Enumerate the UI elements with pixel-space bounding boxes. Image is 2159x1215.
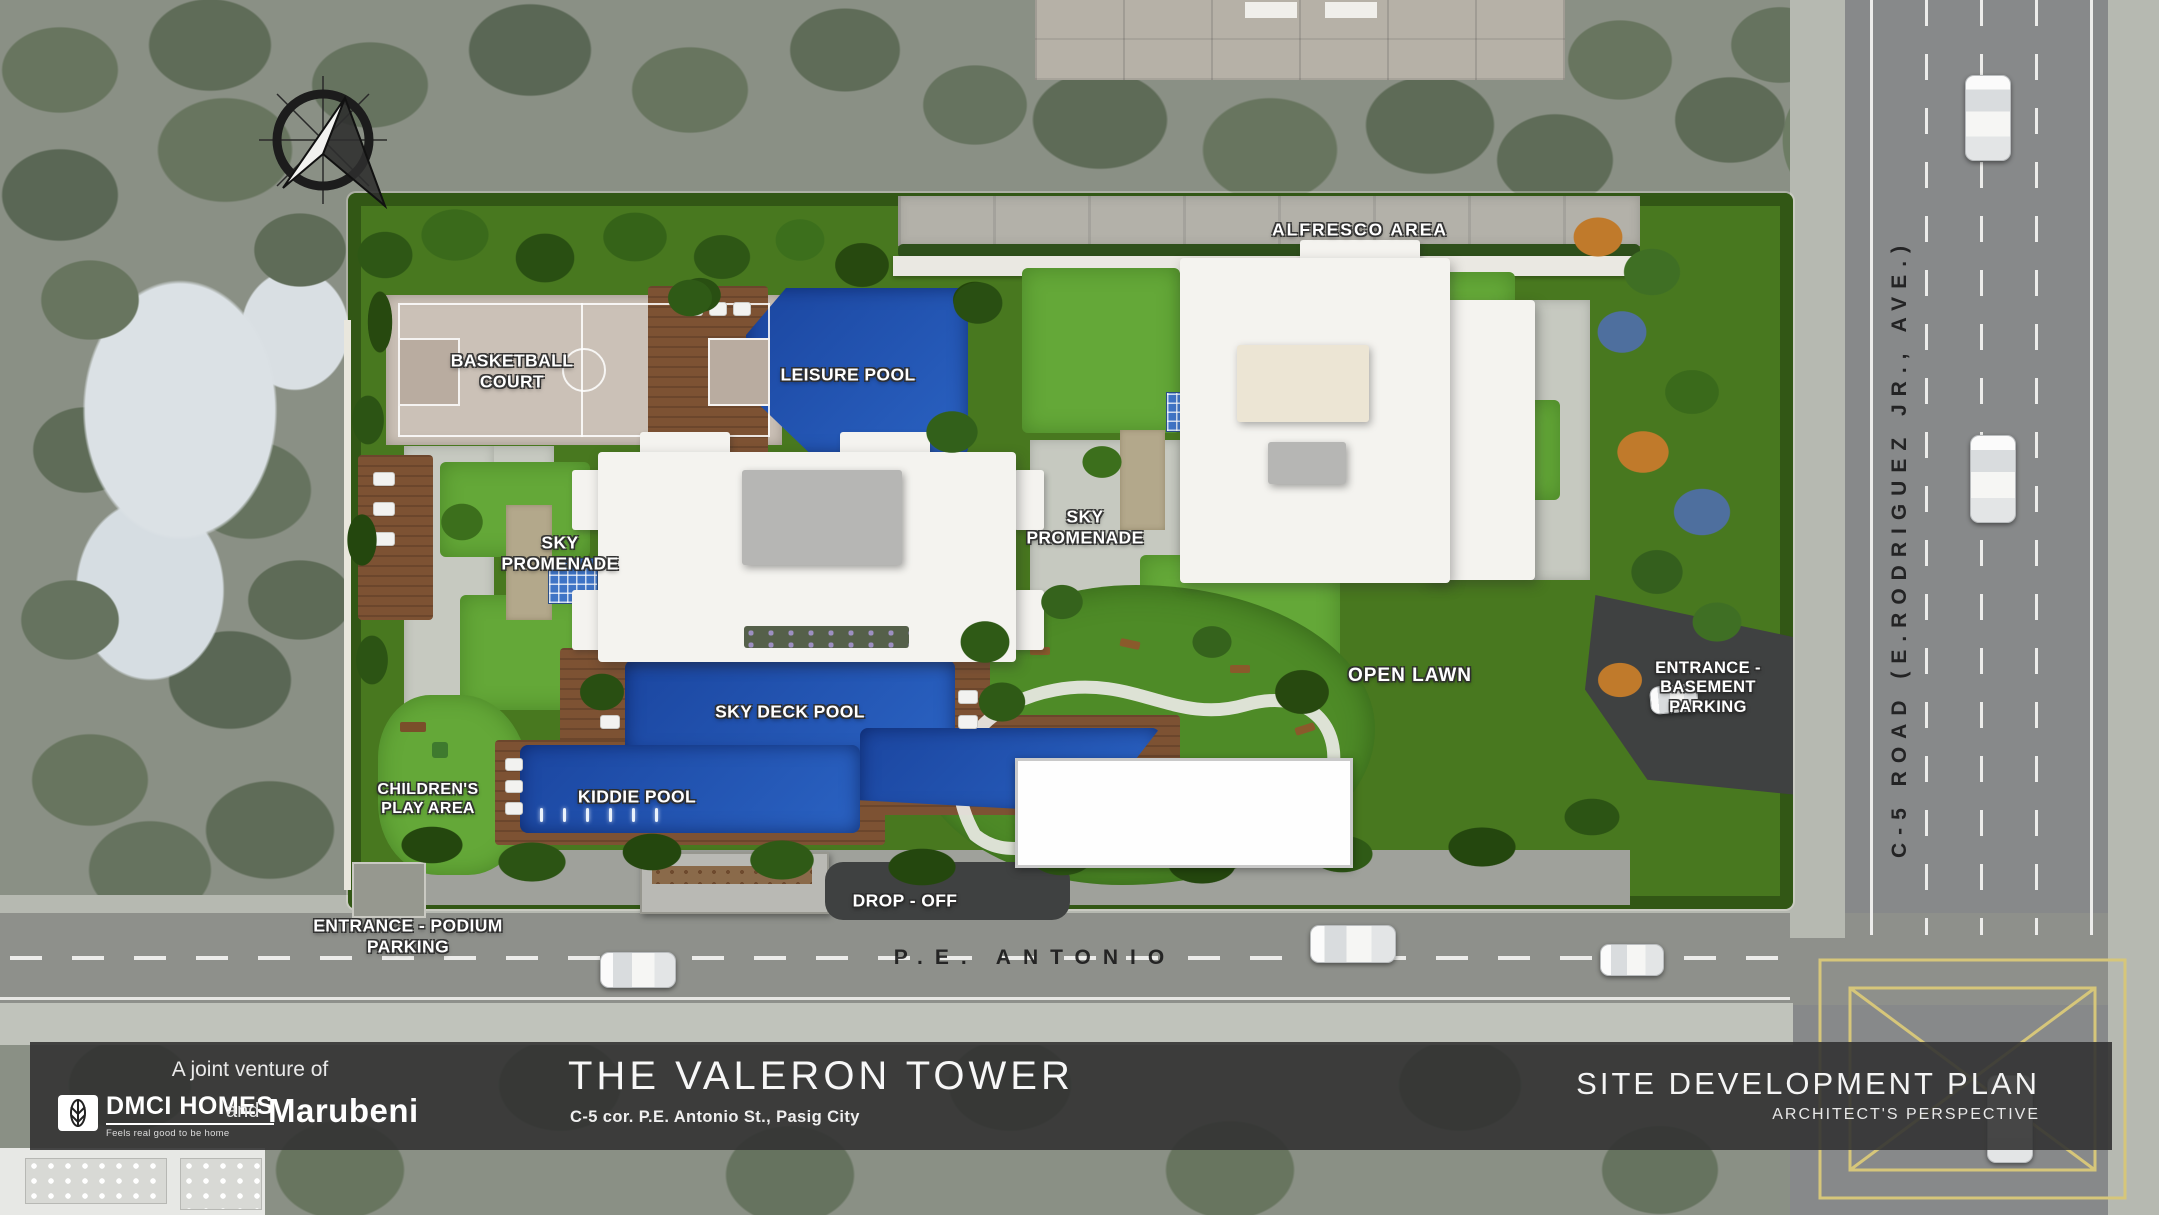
lounger [505, 758, 523, 771]
lounger [505, 780, 523, 793]
cabana-seat [373, 472, 395, 486]
tower1-planter [744, 626, 909, 648]
and-text: and [226, 1100, 259, 1123]
label-kiddie-pool: KIDDIE POOL [522, 787, 752, 808]
cabana-terrace [358, 455, 433, 620]
c5-sidewalk-left [1790, 0, 1845, 938]
drop-off-canopy-strip [652, 866, 812, 884]
tower2-roof-box [1268, 442, 1346, 484]
play-equipment [400, 722, 426, 732]
car-icon [1600, 944, 1664, 976]
dmci-tagline: Feels real good to be home [106, 1128, 274, 1139]
label-entrance-podium: ENTRANCE - PODIUM PARKING [283, 915, 533, 956]
lawn-panel [1022, 268, 1180, 433]
fountain-jet [586, 808, 589, 822]
plan-subtitle: ARCHITECT'S PERSPECTIVE [1772, 1106, 2040, 1124]
fountain-jet [655, 808, 658, 822]
fountain-jet [540, 808, 543, 822]
lounger [600, 690, 620, 704]
podium-parking-ramp [352, 862, 426, 918]
parking-stall-grid [180, 1158, 262, 1210]
neighbor-building [1035, 0, 1565, 80]
car-icon [1970, 435, 2016, 523]
label-alfresco-area: ALFRESCO AREA [1230, 220, 1490, 241]
neighbor-roof-box [1325, 2, 1377, 18]
car-icon [1965, 75, 2011, 161]
parking-stall-grid [25, 1158, 167, 1204]
label-sky-deck-pool: SKY DECK POOL [640, 702, 940, 723]
lane-line [2090, 0, 2093, 935]
neighbor-roof-box [1245, 2, 1297, 18]
label-drop-off: DROP - OFF [805, 891, 1005, 912]
label-open-lawn: OPEN LAWN [1295, 665, 1525, 687]
c5-road-label: C-5 ROAD (E.RODRIGUEZ JR., AVE.) [1888, 95, 1932, 1000]
label-basketball-court: BASKETBALL COURT [422, 350, 602, 391]
site-development-plan: C-5 ROAD (E.RODRIGUEZ JR., AVE.) P.E. AN… [0, 0, 2159, 1215]
label-sky-promenade-right: SKY PROMENADE [1020, 506, 1150, 547]
tower1-wing [1014, 590, 1044, 650]
title-bar: A joint venture of DMCI HOMES Feels real… [30, 1042, 2112, 1150]
play-equipment [432, 742, 448, 758]
lounger [709, 302, 727, 316]
lane-line-dashed [2035, 0, 2038, 935]
car-icon [1310, 925, 1396, 963]
lane-line [1870, 0, 1873, 935]
fountain-jet [563, 808, 566, 822]
edge-line [0, 997, 1790, 1000]
lounger [958, 690, 978, 704]
compass-icon [253, 68, 403, 218]
site-perimeter-wall [344, 320, 351, 890]
lounger [685, 302, 703, 316]
project-address: C-5 cor. P.E. Antonio St., Pasig City [570, 1108, 860, 1127]
pe-antonio-road-label: P.E. ANTONIO [845, 946, 1225, 970]
dmci-logo [58, 1095, 98, 1131]
project-title: THE VALERON TOWER [568, 1054, 1074, 1099]
fountain-jet [632, 808, 635, 822]
label-childrens-play-area: CHILDREN'S PLAY AREA [361, 781, 496, 819]
blank-callout-box [1015, 758, 1353, 868]
car-icon [600, 952, 676, 988]
plan-title: SITE DEVELOPMENT PLAN [1576, 1066, 2040, 1102]
lounger [958, 715, 978, 729]
fountain-jet [609, 808, 612, 822]
marubeni-wordmark: Marubeni [268, 1092, 419, 1130]
cabana-seat [373, 532, 395, 546]
tower1-roof-box [742, 470, 902, 565]
cabana-seat [373, 502, 395, 516]
lounger [600, 715, 620, 729]
label-leisure-pool: LEISURE POOL [733, 365, 963, 386]
label-sky-promenade-left: SKY PROMENADE [498, 532, 623, 573]
pe-sidewalk-bottom [0, 1003, 1793, 1045]
tower2-roof-box [1237, 345, 1369, 422]
label-entrance-basement: ENTRANCE - BASEMENT PARKING [1649, 659, 1767, 717]
lounger [505, 802, 523, 815]
lounger [733, 302, 751, 316]
joint-venture-text: A joint venture of [140, 1058, 360, 1082]
dmci-emblem-icon [58, 1095, 98, 1131]
